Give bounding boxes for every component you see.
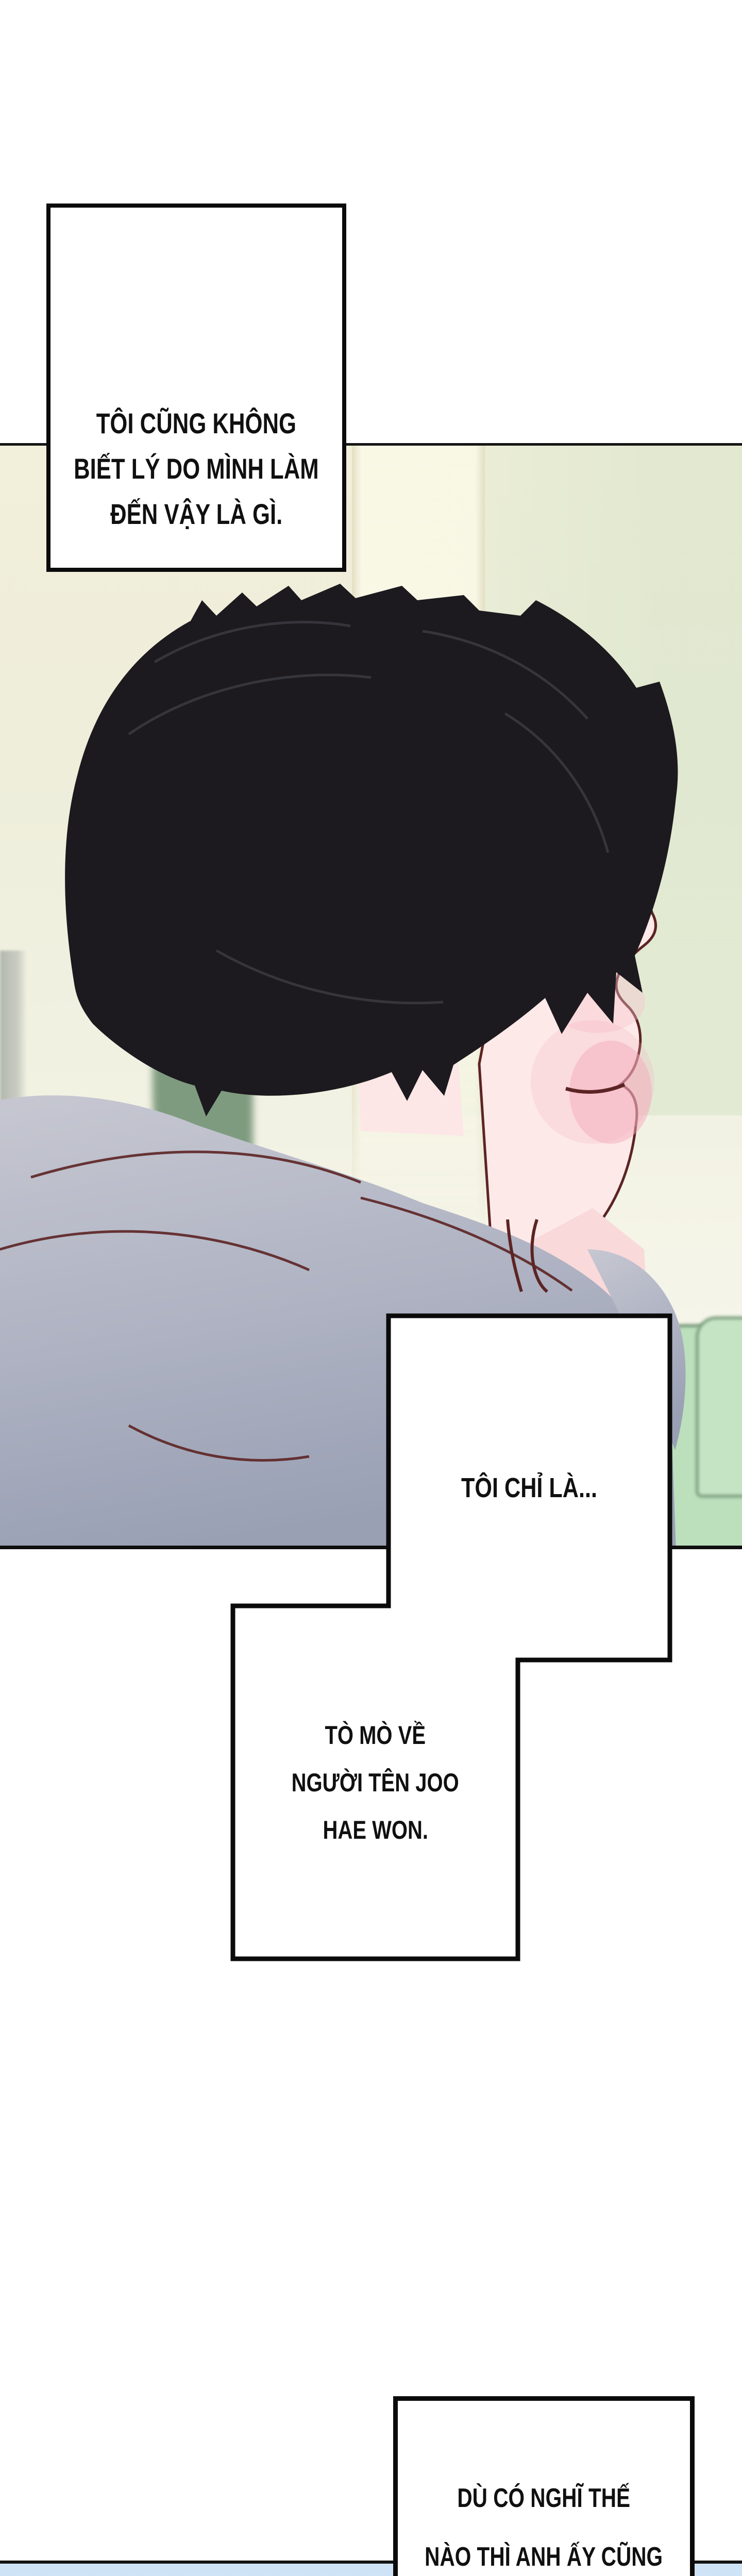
narration-box-3: TÒ MÒ VỀ NGƯỜI TÊN JOO HAE WON. xyxy=(233,1606,518,1959)
narration-line: TÔI CŨNG KHÔNG xyxy=(96,401,296,446)
narration-line: BIẾT LÝ DO MÌNH LÀM xyxy=(74,446,319,492)
narration-box-4: DÙ CÓ NGHĨ THẾ NÀO THÌ ANH ẤY CŨNG ĐÂU C… xyxy=(393,2396,695,2576)
narration-line: NÀO THÌ ANH ẤY CŨNG xyxy=(425,2528,663,2576)
narration-line: TÒ MÒ VỀ xyxy=(325,1711,426,1759)
narration-line: NGƯỜI TÊN JOO xyxy=(292,1759,459,1806)
narration-line: HAE WON. xyxy=(323,1806,428,1854)
comic-page: TÔI CŨNG KHÔNG BIẾT LÝ DO MÌNH LÀM ĐẾN V… xyxy=(0,0,742,2576)
narration-box-1: TÔI CŨNG KHÔNG BIẾT LÝ DO MÌNH LÀM ĐẾN V… xyxy=(46,204,346,572)
narration-line: ĐẾN VẬY LÀ GÌ. xyxy=(110,492,282,537)
narration-line: TÔI CHỈ LÀ... xyxy=(461,1465,597,1511)
narration-line: DÙ CÓ NGHĨ THẾ xyxy=(458,2469,631,2528)
